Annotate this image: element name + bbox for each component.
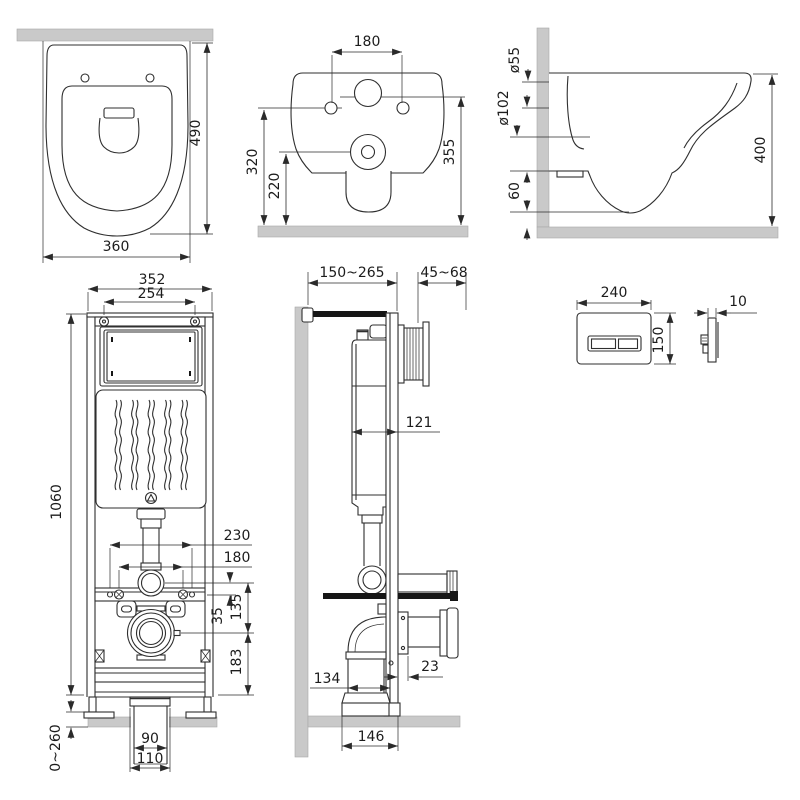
mounting-ledge [557,171,583,177]
dim-height-400: 400 [753,74,778,226]
dim-label: 400 [753,137,769,164]
wall-rod [313,311,387,317]
dim-top-bolt-spacing-254: 254 [104,286,195,315]
wall-section [537,28,549,227]
wall-anchor [302,308,313,322]
dim-width-360: 360 [43,239,190,257]
flush-plate-side [701,318,718,362]
drawing-page: 490 360 180 320 220 [0,0,800,800]
dim-label: 360 [103,239,130,255]
dim-foot-adjust: 0~260 [48,700,88,772]
rail-bracket [378,604,386,614]
dim-label: 110 [137,751,164,767]
installation-frame-side-view: 150~265 45~68 121 23 134 146 [295,265,468,757]
drain-connector [398,608,458,658]
dim-label: 134 [314,671,341,687]
dim-label: 45~68 [420,265,467,281]
floor-section [537,227,778,238]
top-bolt [191,317,200,326]
cistern-cover-panel [96,390,206,508]
fixing-hole [397,102,409,114]
flush-pipe-joint [141,563,161,570]
dim-label: 355 [442,139,458,166]
frame-top-cap [87,313,213,317]
actuator-bellows [404,322,429,386]
dim-height-1060: 1060 [49,314,86,695]
dim-bottom-gap-60: 60 [507,173,527,241]
dim-label: 180 [224,550,251,566]
dim-elbow-depth-134: 134 [310,671,390,688]
dim-inlet-height-355: 355 [442,97,461,225]
technical-drawing: 490 360 180 320 220 [0,0,800,800]
dim-label: 254 [138,286,165,302]
bracket-bar-edge [323,593,386,599]
actuator-flange [398,325,404,383]
flush-slot [104,108,134,118]
plate-clip [703,345,708,353]
dim-inlet-dia: ø55 [507,47,528,81]
dim-label: 490 [188,120,204,147]
dim-label: 90 [141,731,159,747]
dim-outlet-dia: ø102 [496,90,527,135]
cistern [352,325,387,566]
flush-elbow [358,566,386,594]
dim-plate-thickness-10: 10 [694,294,757,317]
dim-label: 35 [210,607,226,625]
toilet-side-view: ø55 ø102 60 400 [496,28,778,240]
top-bolt [100,317,109,326]
bowl-profile [549,73,751,213]
dim-outlet-height-220: 220 [267,154,286,225]
dim-label: 150 [651,327,667,354]
drain-handle [174,631,180,636]
drain-elbow [342,617,390,716]
flush-plate-views: 240 150 10 [577,285,757,364]
dim-label: 240 [601,285,628,301]
dim-label: 220 [267,173,283,200]
dim-label: 10 [729,294,747,310]
dim-label: 230 [224,528,251,544]
drain-socket [128,610,175,657]
access-window [100,327,202,386]
lower-cross-bar [95,668,205,682]
trap-cover [346,171,391,212]
bracket-tab [117,601,136,617]
dim-bolt-height-320: 320 [245,110,264,225]
floor-section [258,226,468,237]
toilet-top-view: 490 360 [17,29,213,263]
installation-frame-front-view: 352 254 1060 230 180 3 [48,272,254,772]
floor-section [308,716,460,727]
wall-section [295,307,308,757]
adjustable-foot [89,697,96,712]
dim-label: 180 [354,34,381,50]
wall-section [17,29,213,41]
dim-label: 1060 [49,484,65,520]
bowl-outline [46,45,188,236]
dim-label: 320 [245,149,261,176]
adjustable-foot [204,697,211,712]
dim-plate-height-150: 150 [651,313,676,364]
dim-label: 150~265 [319,265,384,281]
bracket-tab [166,601,185,617]
flush-pipe-stub [398,571,457,595]
dim-label: ø55 [507,47,523,73]
fixing-hole [325,102,337,114]
dim-actuator-depth: 45~68 [418,265,468,323]
dim-label: 60 [507,182,523,200]
outlet-hole [351,135,386,170]
dim-label: 0~260 [48,724,64,771]
inlet-hole [355,80,382,107]
toilet-rear-view: 180 320 220 355 [245,34,468,237]
dim-label: 183 [229,649,245,676]
frame-rail [386,313,398,703]
plate-clip [701,335,708,344]
dim-label: 23 [421,659,439,675]
flush-pipe-collar [137,509,165,519]
frame-bolt-strip [95,317,205,326]
dim-plate-width-240: 240 [577,285,651,310]
dim-label: ø102 [496,90,512,125]
dim-label: 121 [406,415,433,431]
dim-label: 146 [358,729,385,745]
dim-label: 135 [229,594,245,621]
dim-frame-depth: 150~265 [308,265,397,311]
dim-outlet-to-base-183: 183 [218,633,254,695]
